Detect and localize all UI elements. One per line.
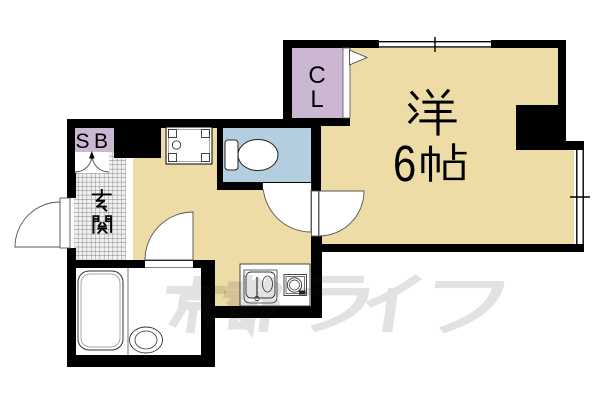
svg-text:C: C: [308, 62, 325, 89]
svg-text:SB: SB: [75, 130, 112, 153]
svg-text:L: L: [310, 86, 323, 113]
svg-text:6: 6: [393, 135, 416, 192]
